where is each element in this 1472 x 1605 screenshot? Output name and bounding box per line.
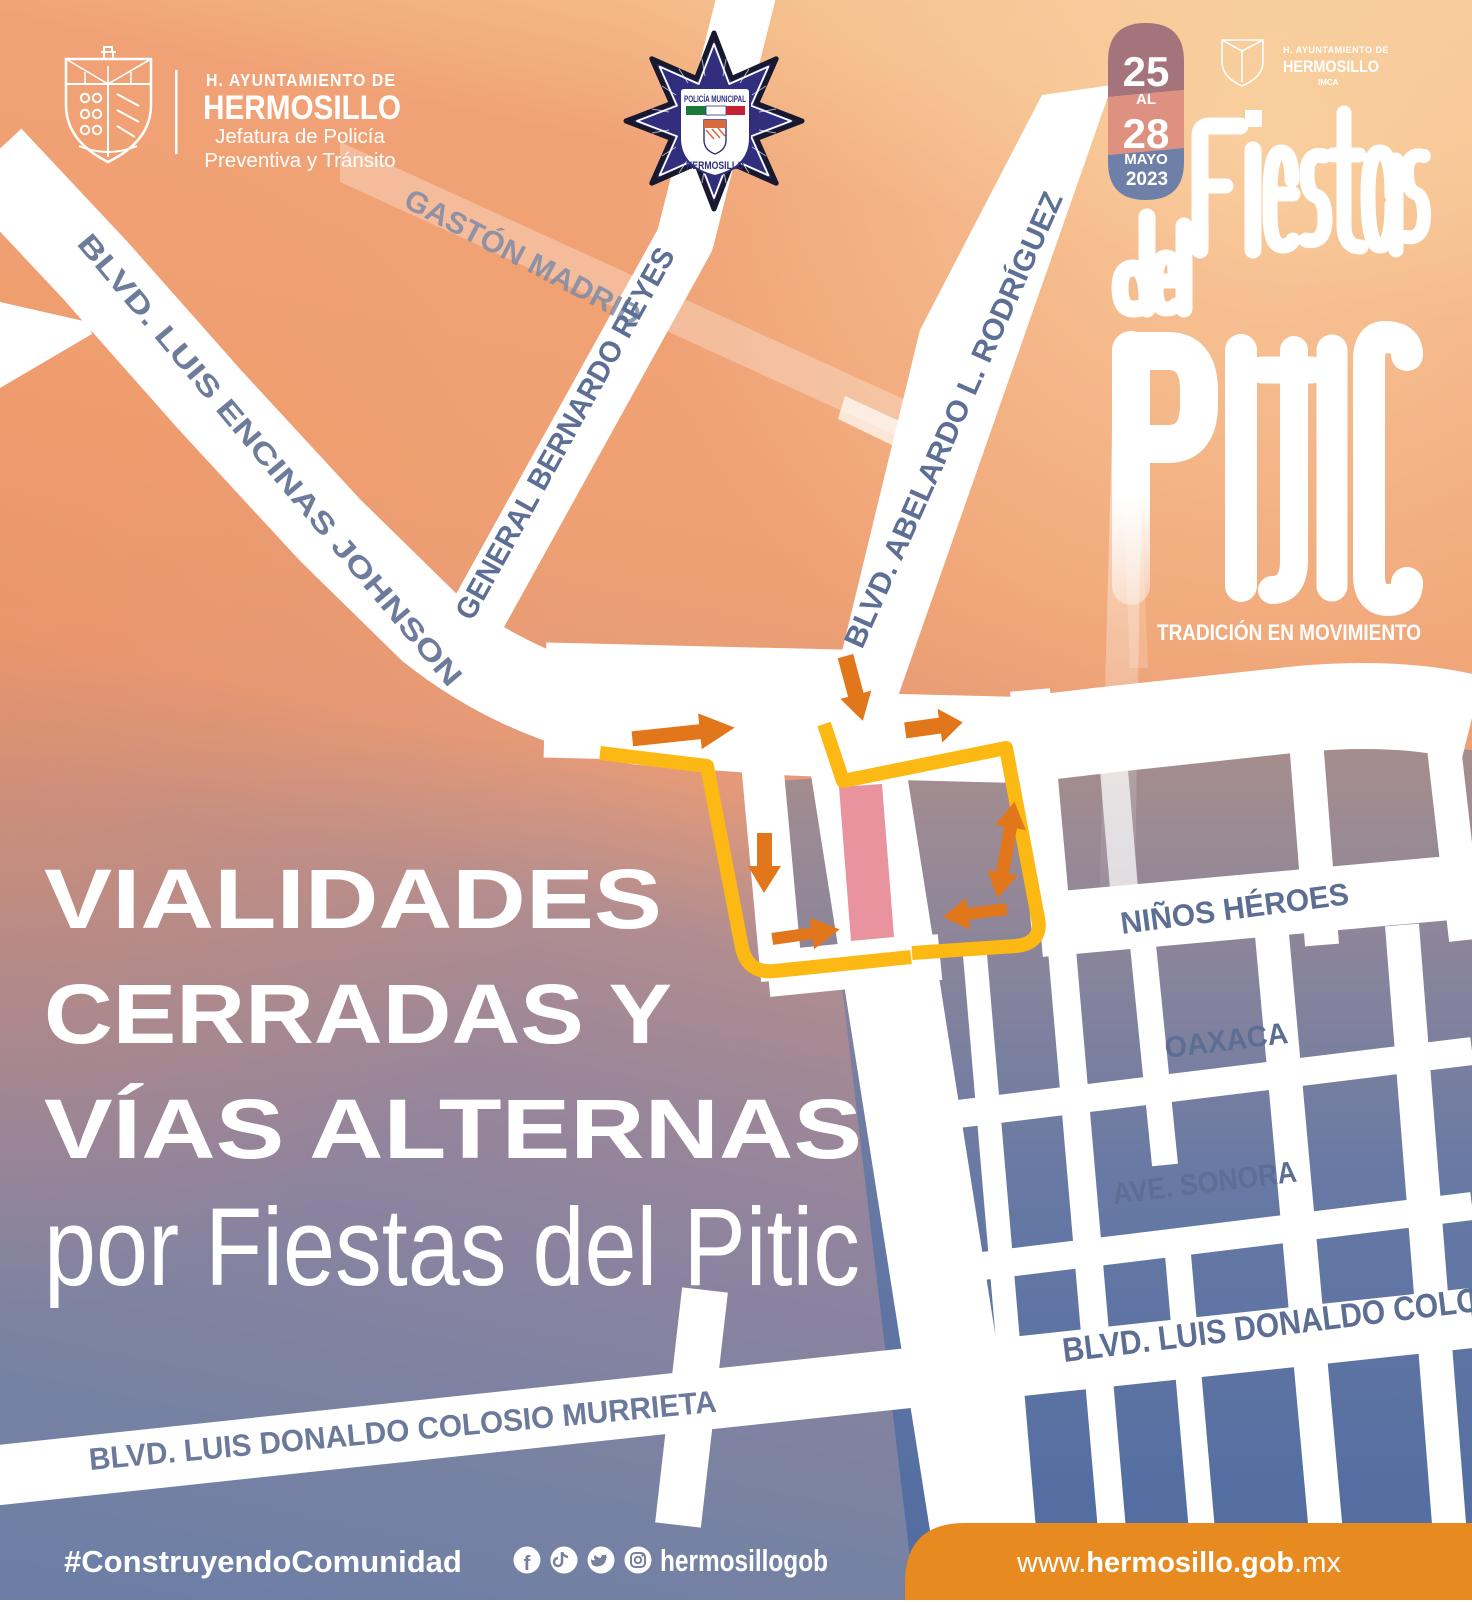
svg-text:TRADICIÓN EN MOVIMIENTO: TRADICIÓN EN MOVIMIENTO xyxy=(1157,620,1421,645)
svg-text:Preventiva y Tránsito: Preventiva y Tránsito xyxy=(204,149,395,172)
svg-text:AL: AL xyxy=(1136,91,1156,108)
svg-text:MAYO: MAYO xyxy=(1124,151,1168,168)
svg-text:2023: 2023 xyxy=(1126,169,1168,190)
svg-text:HERMOSILLO: HERMOSILLO xyxy=(203,89,401,127)
svg-text:POLICÍA MUNICIPAL: POLICÍA MUNICIPAL xyxy=(684,94,746,105)
svg-text:CERRADAS Y: CERRADAS Y xyxy=(44,967,672,1061)
svg-text:HERMOSILLO: HERMOSILLO xyxy=(686,160,744,172)
svg-text:hermosillogob: hermosillogob xyxy=(660,1543,828,1578)
svg-text:H. AYUNTAMIENTO DE: H. AYUNTAMIENTO DE xyxy=(1283,45,1389,55)
svg-text:#ConstruyendoComunidad: #ConstruyendoComunidad xyxy=(64,1544,462,1579)
svg-text:f: f xyxy=(524,1553,531,1575)
svg-text:HERMOSILLO: HERMOSILLO xyxy=(1283,57,1379,76)
svg-text:www.hermosillo.gob.mx: www.hermosillo.gob.mx xyxy=(1016,1547,1341,1579)
svg-text:25: 25 xyxy=(1123,48,1170,95)
svg-text:por Fiestas del Pitic: por Fiestas del Pitic xyxy=(44,1186,860,1309)
svg-text:Jefatura de Policía: Jefatura de Policía xyxy=(215,125,385,148)
svg-text:28: 28 xyxy=(1123,110,1170,157)
svg-text:VÍAS ALTERNAS: VÍAS ALTERNAS xyxy=(44,1082,862,1176)
svg-text:VIALIDADES: VIALIDADES xyxy=(44,852,662,946)
svg-text:H. AYUNTAMIENTO DE: H. AYUNTAMIENTO DE xyxy=(206,70,396,90)
svg-text:IMCA: IMCA xyxy=(1318,78,1339,87)
